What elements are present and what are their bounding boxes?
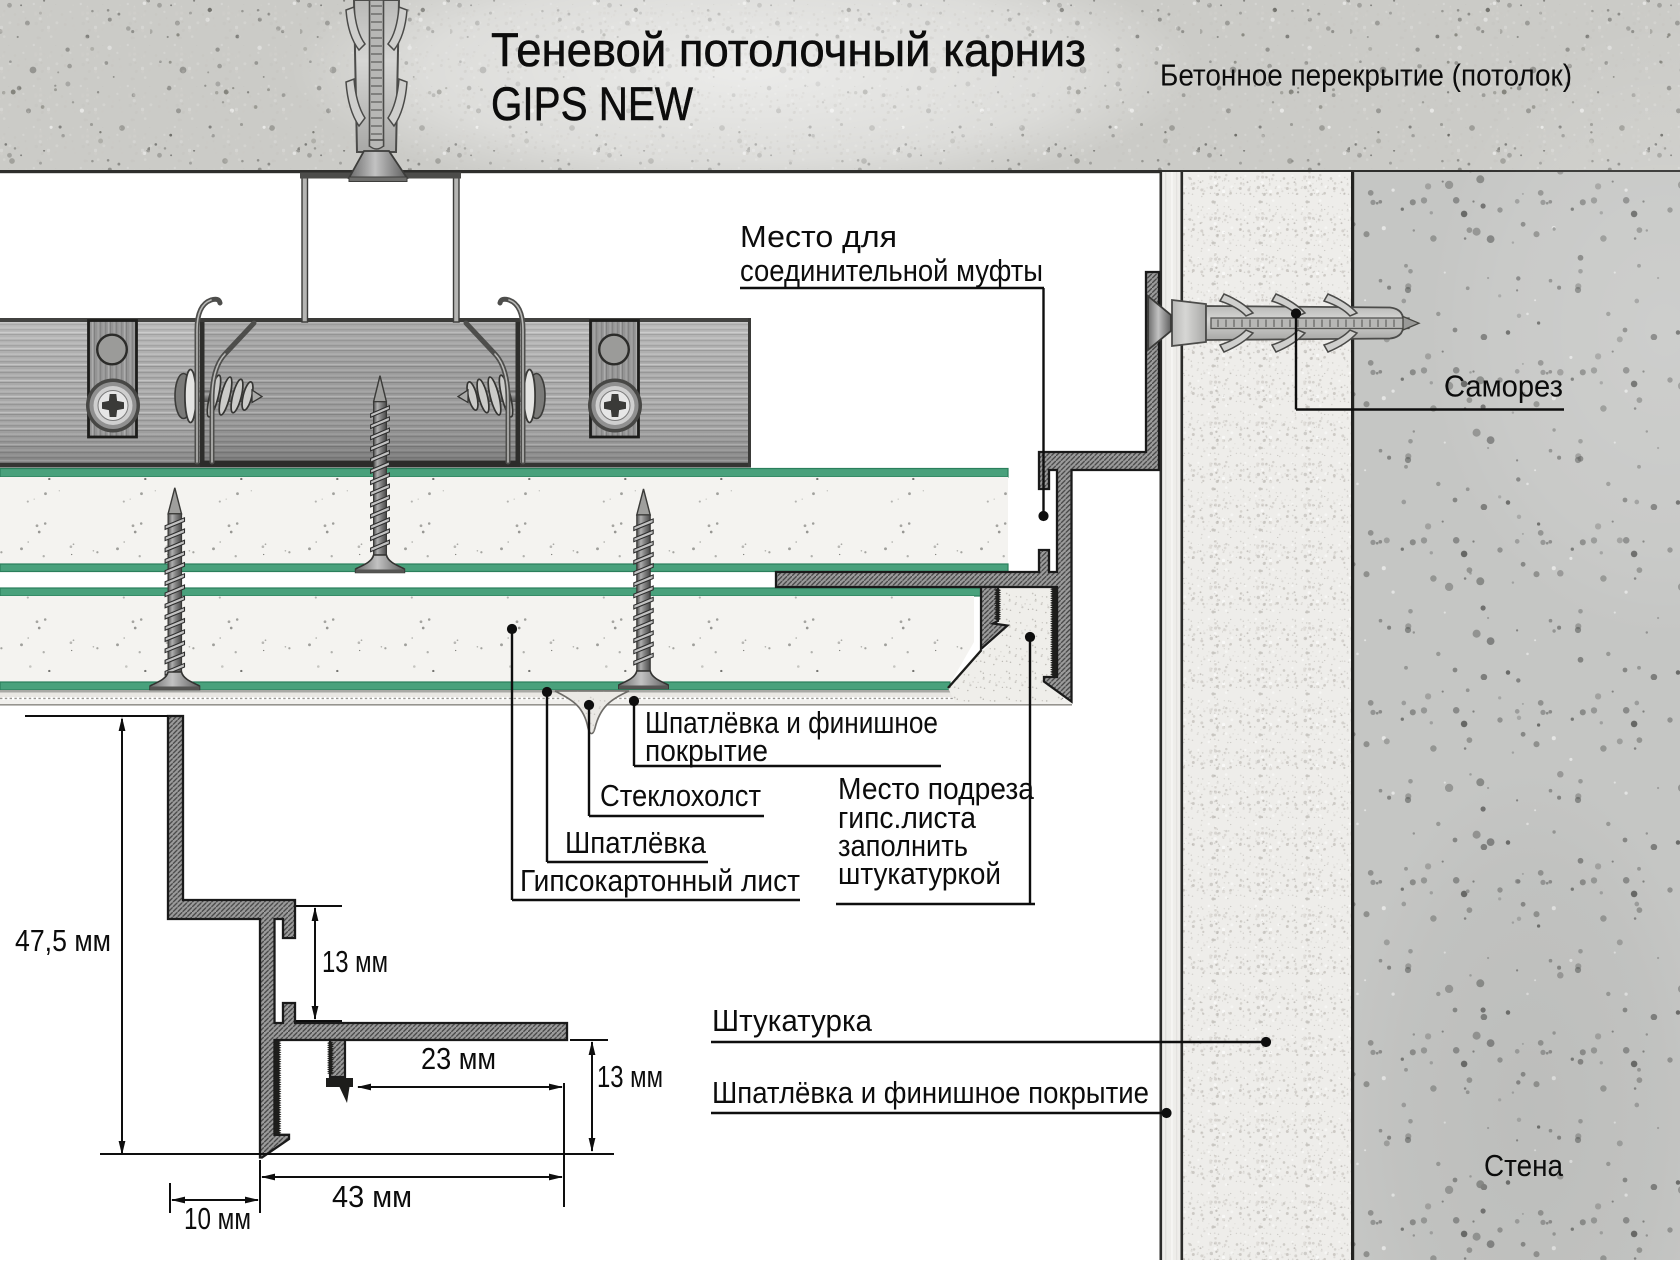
svg-text:13 мм: 13 мм <box>322 944 388 979</box>
svg-text:Стена: Стена <box>1484 1148 1564 1183</box>
svg-text:Место для: Место для <box>740 219 897 254</box>
svg-text:соединительной муфты: соединительной муфты <box>740 253 1043 288</box>
svg-text:покрытие: покрытие <box>645 733 768 768</box>
svg-text:10 мм: 10 мм <box>184 1201 251 1236</box>
svg-text:47,5 мм: 47,5 мм <box>15 923 111 958</box>
svg-text:Саморез: Саморез <box>1444 369 1563 404</box>
svg-text:13 мм: 13 мм <box>597 1059 663 1094</box>
svg-text:23 мм: 23 мм <box>421 1041 496 1076</box>
svg-text:Бетонное перекрытие (потолок): Бетонное перекрытие (потолок) <box>1160 58 1572 93</box>
svg-text:Гипсокартонный лист: Гипсокартонный лист <box>520 863 800 898</box>
svg-text:Штукатурка: Штукатурка <box>712 1003 873 1038</box>
svg-text:Стеклохолст: Стеклохолст <box>600 778 761 813</box>
svg-text:Теневой потолочный карниз: Теневой потолочный карниз <box>491 23 1086 76</box>
svg-text:GIPS NEW: GIPS NEW <box>491 77 694 130</box>
svg-text:Шпатлёвка и финишное покрытие: Шпатлёвка и финишное покрытие <box>712 1075 1149 1110</box>
svg-text:43 мм: 43 мм <box>332 1179 412 1214</box>
svg-text:штукатуркой: штукатуркой <box>838 856 1001 891</box>
svg-text:Шпатлёвка: Шпатлёвка <box>565 825 707 860</box>
